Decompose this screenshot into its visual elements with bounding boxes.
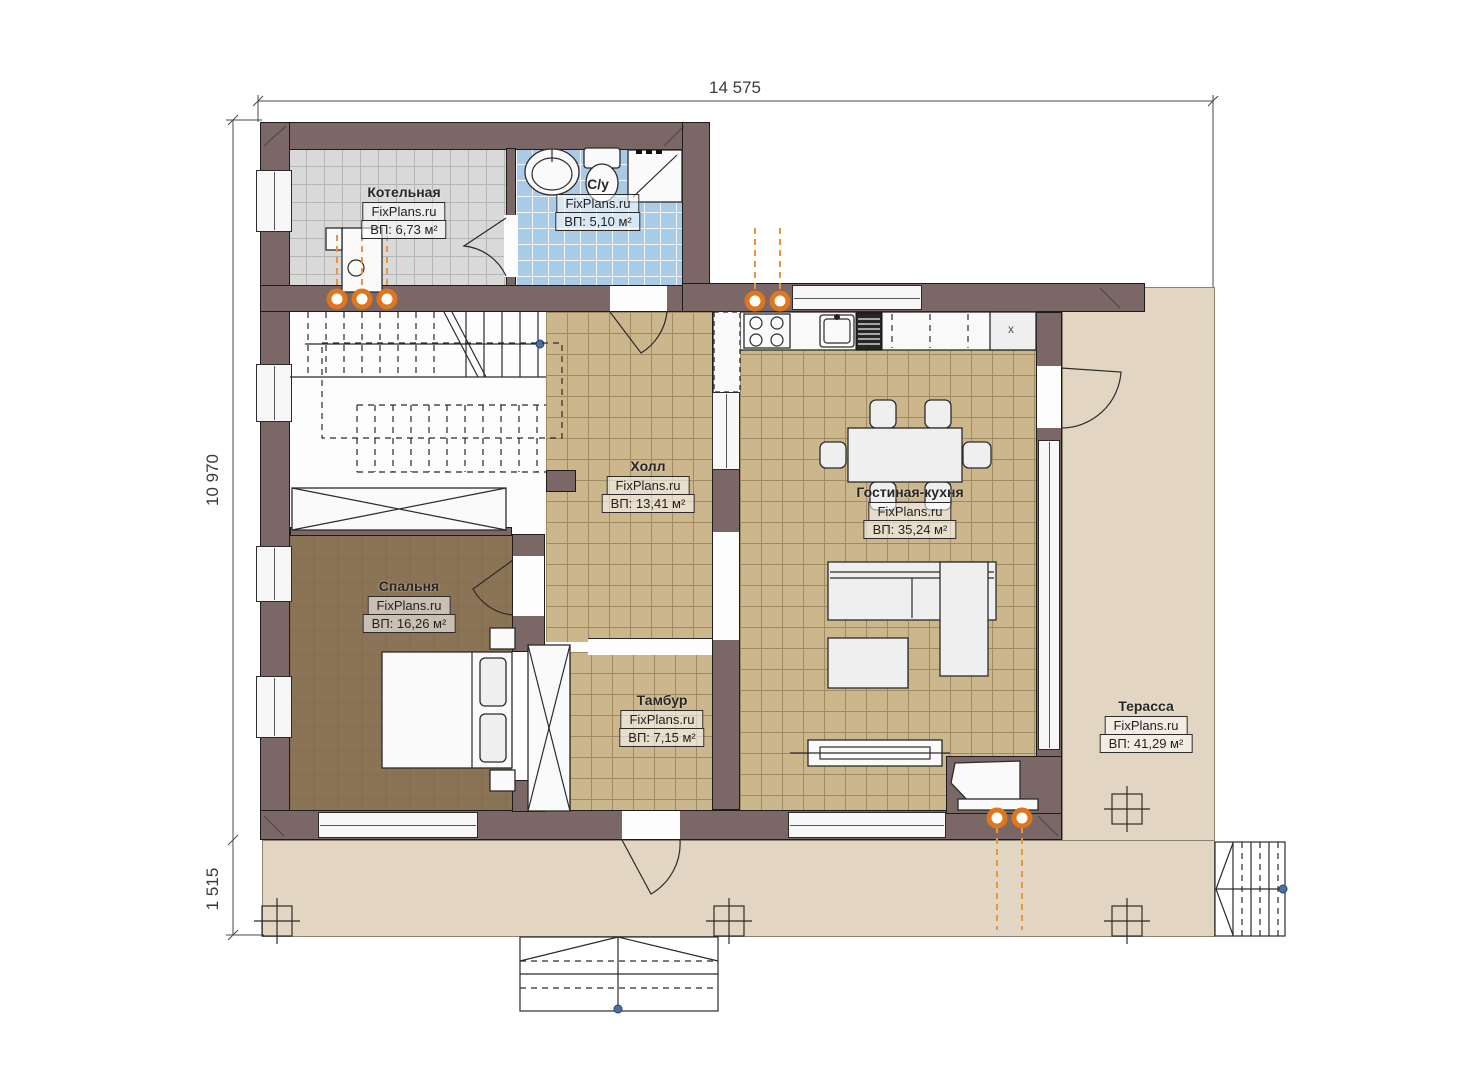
staircase [290,312,562,472]
terrace-steps [1215,842,1287,936]
watermark-box: FixPlans.ru [556,194,639,213]
room-name: Холл [630,458,665,474]
watermark-box: FixPlans.ru [620,710,703,729]
room-name: Спальня [379,578,439,594]
bed-group [382,628,515,791]
room-label-bathroom: С/у FixPlans.ru ВП: 5,10 м² [555,176,640,231]
watermark-box: FixPlans.ru [868,502,951,521]
dimension-height: 10 970 [203,454,223,506]
closet-under-stairs-icon [292,488,506,530]
dimension-porch: 1 515 [203,868,223,911]
floor-plan: x Котельная FixPlans.ru ВП: 6,73 м² С/у … [0,0,1473,1080]
room-name: С/у [587,176,609,192]
pillow [480,714,506,762]
area-box: ВП: 13,41 м² [602,494,695,513]
room-label-boiler: Котельная FixPlans.ru ВП: 6,73 м² [361,184,446,239]
watermark-box: FixPlans.ru [362,202,445,221]
area-box: ВП: 16,26 м² [363,614,456,633]
room-label-living-kitchen: Гостиная-кухня FixPlans.ru ВП: 35,24 м² [856,484,963,539]
area-box: ВП: 41,29 м² [1100,734,1193,753]
fireplace-icon [951,761,1038,810]
nightstand [490,770,515,791]
dimension-width: 14 575 [709,78,761,98]
entrance-steps [520,937,718,1013]
coffee-table [828,638,908,688]
kitchen-cabinet-mark: x [1008,322,1014,336]
fridge-icon [856,313,882,350]
stove-icon [744,314,790,348]
area-box: ВП: 7,15 м² [619,728,704,747]
room-label-bedroom: Спальня FixPlans.ru ВП: 16,26 м² [363,578,456,633]
wardrobe-icon [528,645,570,811]
room-label-terrace: Терасса FixPlans.ru ВП: 41,29 м² [1100,698,1193,753]
area-box: ВП: 35,24 м² [864,520,957,539]
area-box: ВП: 6,73 м² [361,220,446,239]
watermark-box: FixPlans.ru [606,476,689,495]
dining-table [848,428,962,482]
room-name: Терасса [1118,698,1174,714]
watermark-box: FixPlans.ru [1104,716,1187,735]
room-label-hall: Холл FixPlans.ru ВП: 13,41 м² [602,458,695,513]
room-name: Гостиная-кухня [856,484,963,500]
sofa-group [828,562,996,688]
room-name: Котельная [367,184,440,200]
tv-stand [790,740,950,766]
room-label-vestibule: Тамбур FixPlans.ru ВП: 7,15 м² [619,692,704,747]
room-name: Тамбур [637,692,688,708]
kitchen-sink-icon [820,314,854,347]
pillow [480,658,506,706]
nightstand [490,628,515,649]
kitchen-counter [714,312,1036,392]
area-box: ВП: 5,10 м² [555,212,640,231]
sofa-chaise [940,562,988,676]
watermark-box: FixPlans.ru [367,596,450,615]
